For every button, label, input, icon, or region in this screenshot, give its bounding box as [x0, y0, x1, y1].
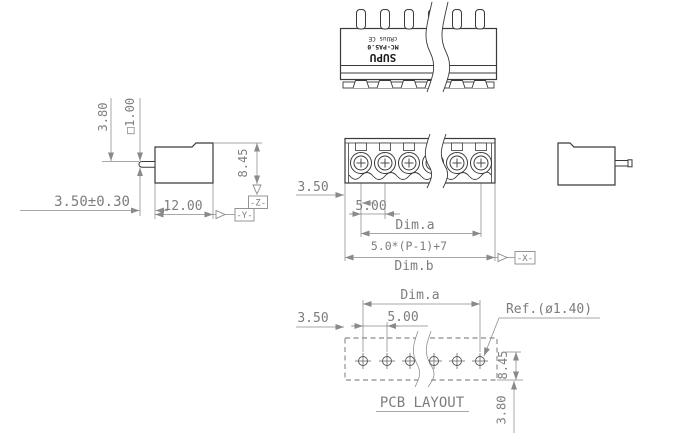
datum-triangle-icon: [216, 211, 225, 219]
dim-hole-ref: Ref.(ø1.40): [484, 302, 600, 356]
dim-row-offset: 8.45: [496, 351, 523, 380]
part-marking: SUPU MC-PA5.0 cRUus CE: [367, 35, 398, 64]
dim-a: Dim.a: [361, 218, 481, 234]
pin: [453, 10, 462, 30]
screw-terminal: [375, 153, 396, 174]
solder-pin: [139, 162, 155, 168]
pcb-hole: [355, 353, 371, 369]
dim-text: 5.0*(P-1)+7: [371, 239, 447, 253]
pin: [357, 10, 366, 30]
front-view-dimensions: 3.50 5.00 Dim.a 5.0*(P-1)+7 Dim.b: [296, 180, 535, 274]
model-text: MC-PA5.0: [367, 43, 398, 51]
technical-drawing: SUPU MC-PA5.0 cRUus CE 3.80 □1.00 3.50±0…: [0, 0, 680, 440]
screw-terminal: [399, 153, 420, 174]
front-view: 3.50 5.00 Dim.a 5.0*(P-1)+7 Dim.b: [296, 134, 535, 274]
dim-text: 5.00: [387, 310, 418, 325]
dim-text: 3.50: [297, 311, 328, 326]
dim-text: 12.00: [163, 199, 202, 214]
pin: [381, 10, 390, 30]
side-body: [558, 143, 615, 185]
side-view-left: 3.80 □1.00 3.50±0.30 12.00 -Y-: [20, 98, 268, 221]
pcb-hole: [379, 353, 395, 369]
solder-pin-tip: [628, 160, 632, 167]
dim-body-depth: 12.00 -Y-: [155, 184, 254, 222]
pcb-layout-title: PCB LAYOUT: [380, 395, 465, 411]
dim-text: 8.45: [236, 149, 250, 178]
dim-text: Dim.a: [400, 288, 439, 303]
pcb-layout: Dim.a 3.50 5.00 Ref.(ø1.40): [296, 288, 600, 433]
solder-pin: [615, 161, 628, 167]
top-view: SUPU MC-PA5.0 cRUus CE: [341, 2, 497, 92]
dim-pin-square: □1.00: [123, 98, 140, 177]
pcb-hole: [472, 353, 488, 369]
dim-tail-length: 3.50±0.30: [20, 168, 168, 216]
pcb-caption: PCB LAYOUT: [376, 395, 469, 412]
dim-text: 3.80: [96, 103, 110, 132]
pin: [476, 10, 485, 30]
dim-text: 5.00: [355, 199, 386, 214]
dim-pitch: 5.00: [349, 199, 400, 214]
screw-terminal: [471, 153, 492, 174]
dim-text: 3.80: [495, 396, 509, 425]
dim-edge-to-hole: 3.50: [296, 311, 344, 327]
datum-triangle-icon: [253, 185, 261, 194]
datum-z-label: -Z-: [250, 199, 266, 209]
dim-text: Dim.b: [394, 259, 433, 274]
brand-text: SUPU: [369, 51, 396, 64]
pcb-hole: [449, 353, 465, 369]
dim-text: □1.00: [123, 98, 137, 134]
datum-x-label: -X-: [517, 254, 533, 264]
pin: [405, 10, 414, 30]
dim-b: 5.0*(P-1)+7 Dim.b -X-: [345, 239, 535, 274]
drawing-sheet: SUPU MC-PA5.0 cRUus CE 3.80 □1.00 3.50±0…: [0, 0, 680, 440]
dim-text: Ref.(ø1.40): [506, 302, 592, 317]
top-view-pins: [357, 10, 485, 30]
cert-text: cRUus CE: [368, 35, 397, 42]
dim-a: Dim.a: [363, 288, 480, 304]
dim-body-height: 8.45 -Z-: [213, 143, 268, 209]
datum-y-label: -Y-: [236, 211, 252, 221]
screw-terminal: [447, 153, 468, 174]
side-view-right: [558, 143, 632, 185]
dim-text: 8.45: [496, 351, 510, 380]
dim-pitch: 5.00: [351, 310, 428, 326]
dim-text: 3.50±0.30: [54, 194, 130, 210]
dim-text: 3.50: [297, 180, 328, 195]
dim-text: Dim.a: [395, 218, 434, 233]
side-body: [155, 143, 213, 183]
dim-hole-to-edge: 3.80: [495, 381, 515, 433]
top-view-body: [341, 29, 497, 80]
screw-terminal: [351, 153, 372, 174]
datum-triangle-icon: [498, 254, 507, 262]
